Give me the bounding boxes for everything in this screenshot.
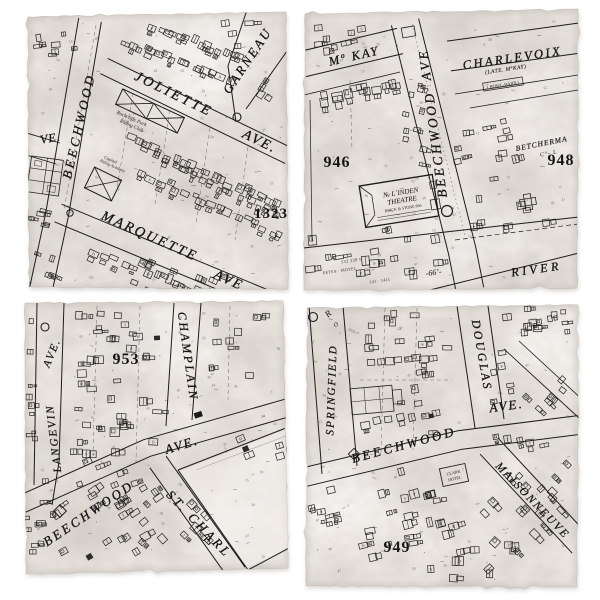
svg-text:50: 50 — [497, 192, 501, 196]
svg-text:P: P — [137, 335, 139, 339]
svg-text:40: 40 — [364, 92, 368, 96]
svg-text:33: 33 — [467, 539, 471, 543]
svg-text:47: 47 — [337, 570, 341, 574]
svg-text:62: 62 — [201, 197, 205, 201]
svg-text:2: 2 — [256, 316, 258, 320]
svg-text:D: D — [80, 382, 83, 386]
svg-text:30: 30 — [488, 38, 492, 42]
svg-text:P: P — [373, 262, 375, 266]
svg-text:D: D — [121, 423, 124, 427]
svg-text:946: 946 — [324, 154, 351, 171]
svg-text:15: 15 — [524, 198, 528, 202]
svg-text:50: 50 — [412, 567, 416, 571]
svg-text:953: 953 — [113, 351, 140, 368]
svg-text:P: P — [412, 273, 414, 277]
svg-text:47: 47 — [264, 194, 268, 198]
svg-text:P: P — [421, 343, 423, 347]
svg-text:2: 2 — [489, 572, 491, 576]
svg-text:15: 15 — [269, 181, 273, 185]
svg-text:47: 47 — [525, 363, 529, 367]
svg-text:50: 50 — [202, 311, 206, 315]
svg-text:47: 47 — [89, 362, 93, 366]
svg-text:47: 47 — [407, 374, 411, 378]
svg-text:40: 40 — [266, 93, 270, 97]
svg-text:S: S — [92, 452, 94, 456]
svg-text:30: 30 — [260, 470, 264, 474]
svg-text:15: 15 — [432, 228, 436, 232]
svg-text:P: P — [359, 271, 362, 275]
svg-text:47: 47 — [211, 372, 215, 376]
svg-text:47: 47 — [37, 527, 41, 531]
svg-text:33: 33 — [80, 361, 84, 365]
svg-text:S: S — [430, 567, 432, 571]
svg-text:24: 24 — [450, 206, 454, 210]
svg-text:1323: 1323 — [254, 206, 288, 222]
svg-text:47: 47 — [245, 534, 249, 538]
svg-text:P: P — [325, 37, 328, 41]
svg-text:33: 33 — [412, 212, 416, 216]
svg-text:S: S — [85, 452, 87, 456]
svg-text:D: D — [458, 559, 461, 563]
svg-text:D: D — [152, 440, 155, 444]
svg-text:24: 24 — [211, 383, 215, 387]
svg-text:949: 949 — [384, 539, 411, 556]
svg-text:S: S — [311, 239, 313, 243]
svg-text:S: S — [368, 346, 370, 350]
svg-text:33: 33 — [530, 318, 534, 322]
svg-text:15: 15 — [457, 421, 461, 425]
svg-text:P: P — [508, 543, 510, 547]
svg-text:12: 12 — [561, 544, 565, 548]
svg-text:2: 2 — [124, 323, 126, 327]
svg-text:33: 33 — [264, 70, 268, 74]
svg-text:P: P — [473, 225, 476, 229]
svg-text:24: 24 — [261, 414, 265, 418]
svg-text:62: 62 — [180, 69, 184, 73]
svg-text:62: 62 — [56, 163, 60, 167]
